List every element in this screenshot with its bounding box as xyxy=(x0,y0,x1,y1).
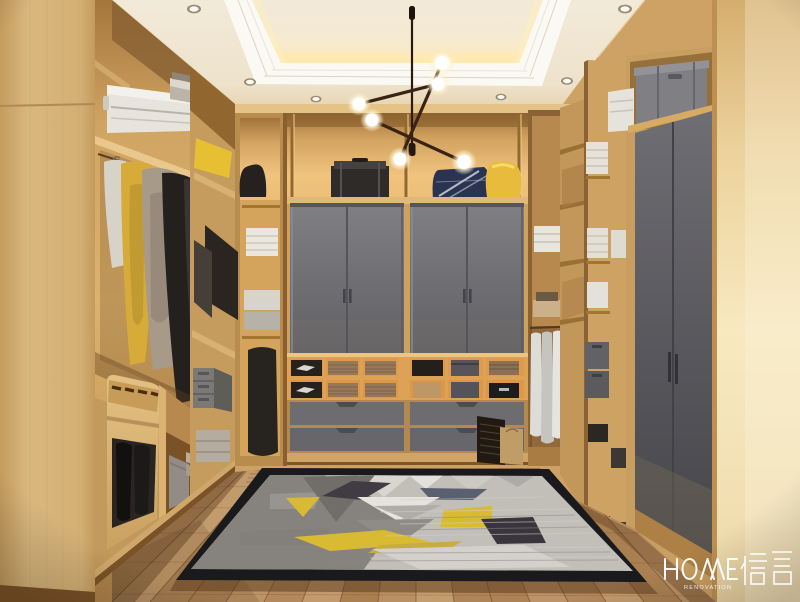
svg-text:RENOVATION: RENOVATION xyxy=(684,585,732,591)
